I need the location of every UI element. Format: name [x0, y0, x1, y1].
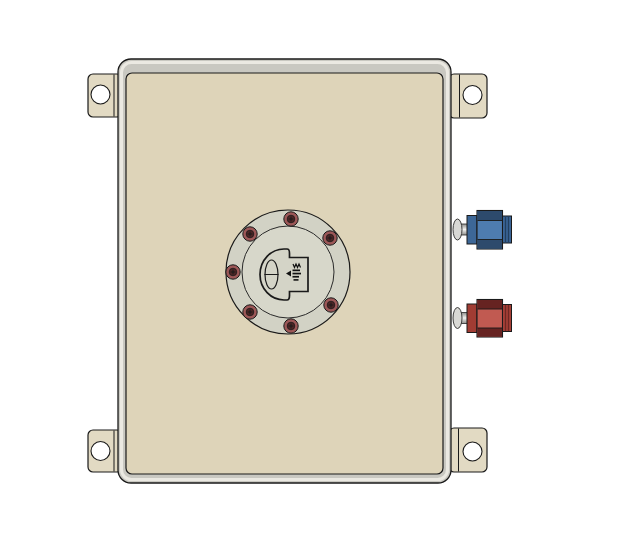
- mounting-bracket-top-left: [88, 74, 122, 117]
- flange-bolt: [284, 319, 298, 333]
- fitting-hex-top-facet: [478, 300, 503, 309]
- fuel-tank-illustration: [0, 0, 627, 554]
- bracket-hole: [91, 85, 110, 104]
- flange-bolt: [243, 227, 257, 241]
- weld-bung-flange: [453, 308, 462, 329]
- flange-bolt: [324, 298, 338, 312]
- fitting-collar: [467, 216, 477, 245]
- bracket-hole: [91, 442, 110, 461]
- flange-bolt: [323, 231, 337, 245]
- mounting-bracket-bottom-left: [88, 430, 122, 472]
- bracket-hole: [463, 442, 482, 461]
- fitting-threaded-end: [503, 305, 512, 332]
- fitting-threaded-end: [503, 216, 512, 243]
- filler-cap-assembly: [226, 210, 350, 334]
- mounting-bracket-bottom-right: [449, 428, 487, 472]
- fitting-hex-top-facet: [478, 211, 503, 221]
- flange-bolt: [284, 212, 298, 226]
- mounting-bracket-top-right: [449, 74, 487, 118]
- fitting-hex-bottom-facet: [478, 328, 503, 337]
- flange-bolt: [226, 265, 240, 279]
- fitting-collar: [467, 304, 477, 333]
- flange-bolt: [243, 305, 257, 319]
- bracket-hole: [463, 86, 482, 105]
- fitting-hex-bottom-facet: [478, 240, 503, 249]
- weld-bung-flange: [453, 219, 462, 240]
